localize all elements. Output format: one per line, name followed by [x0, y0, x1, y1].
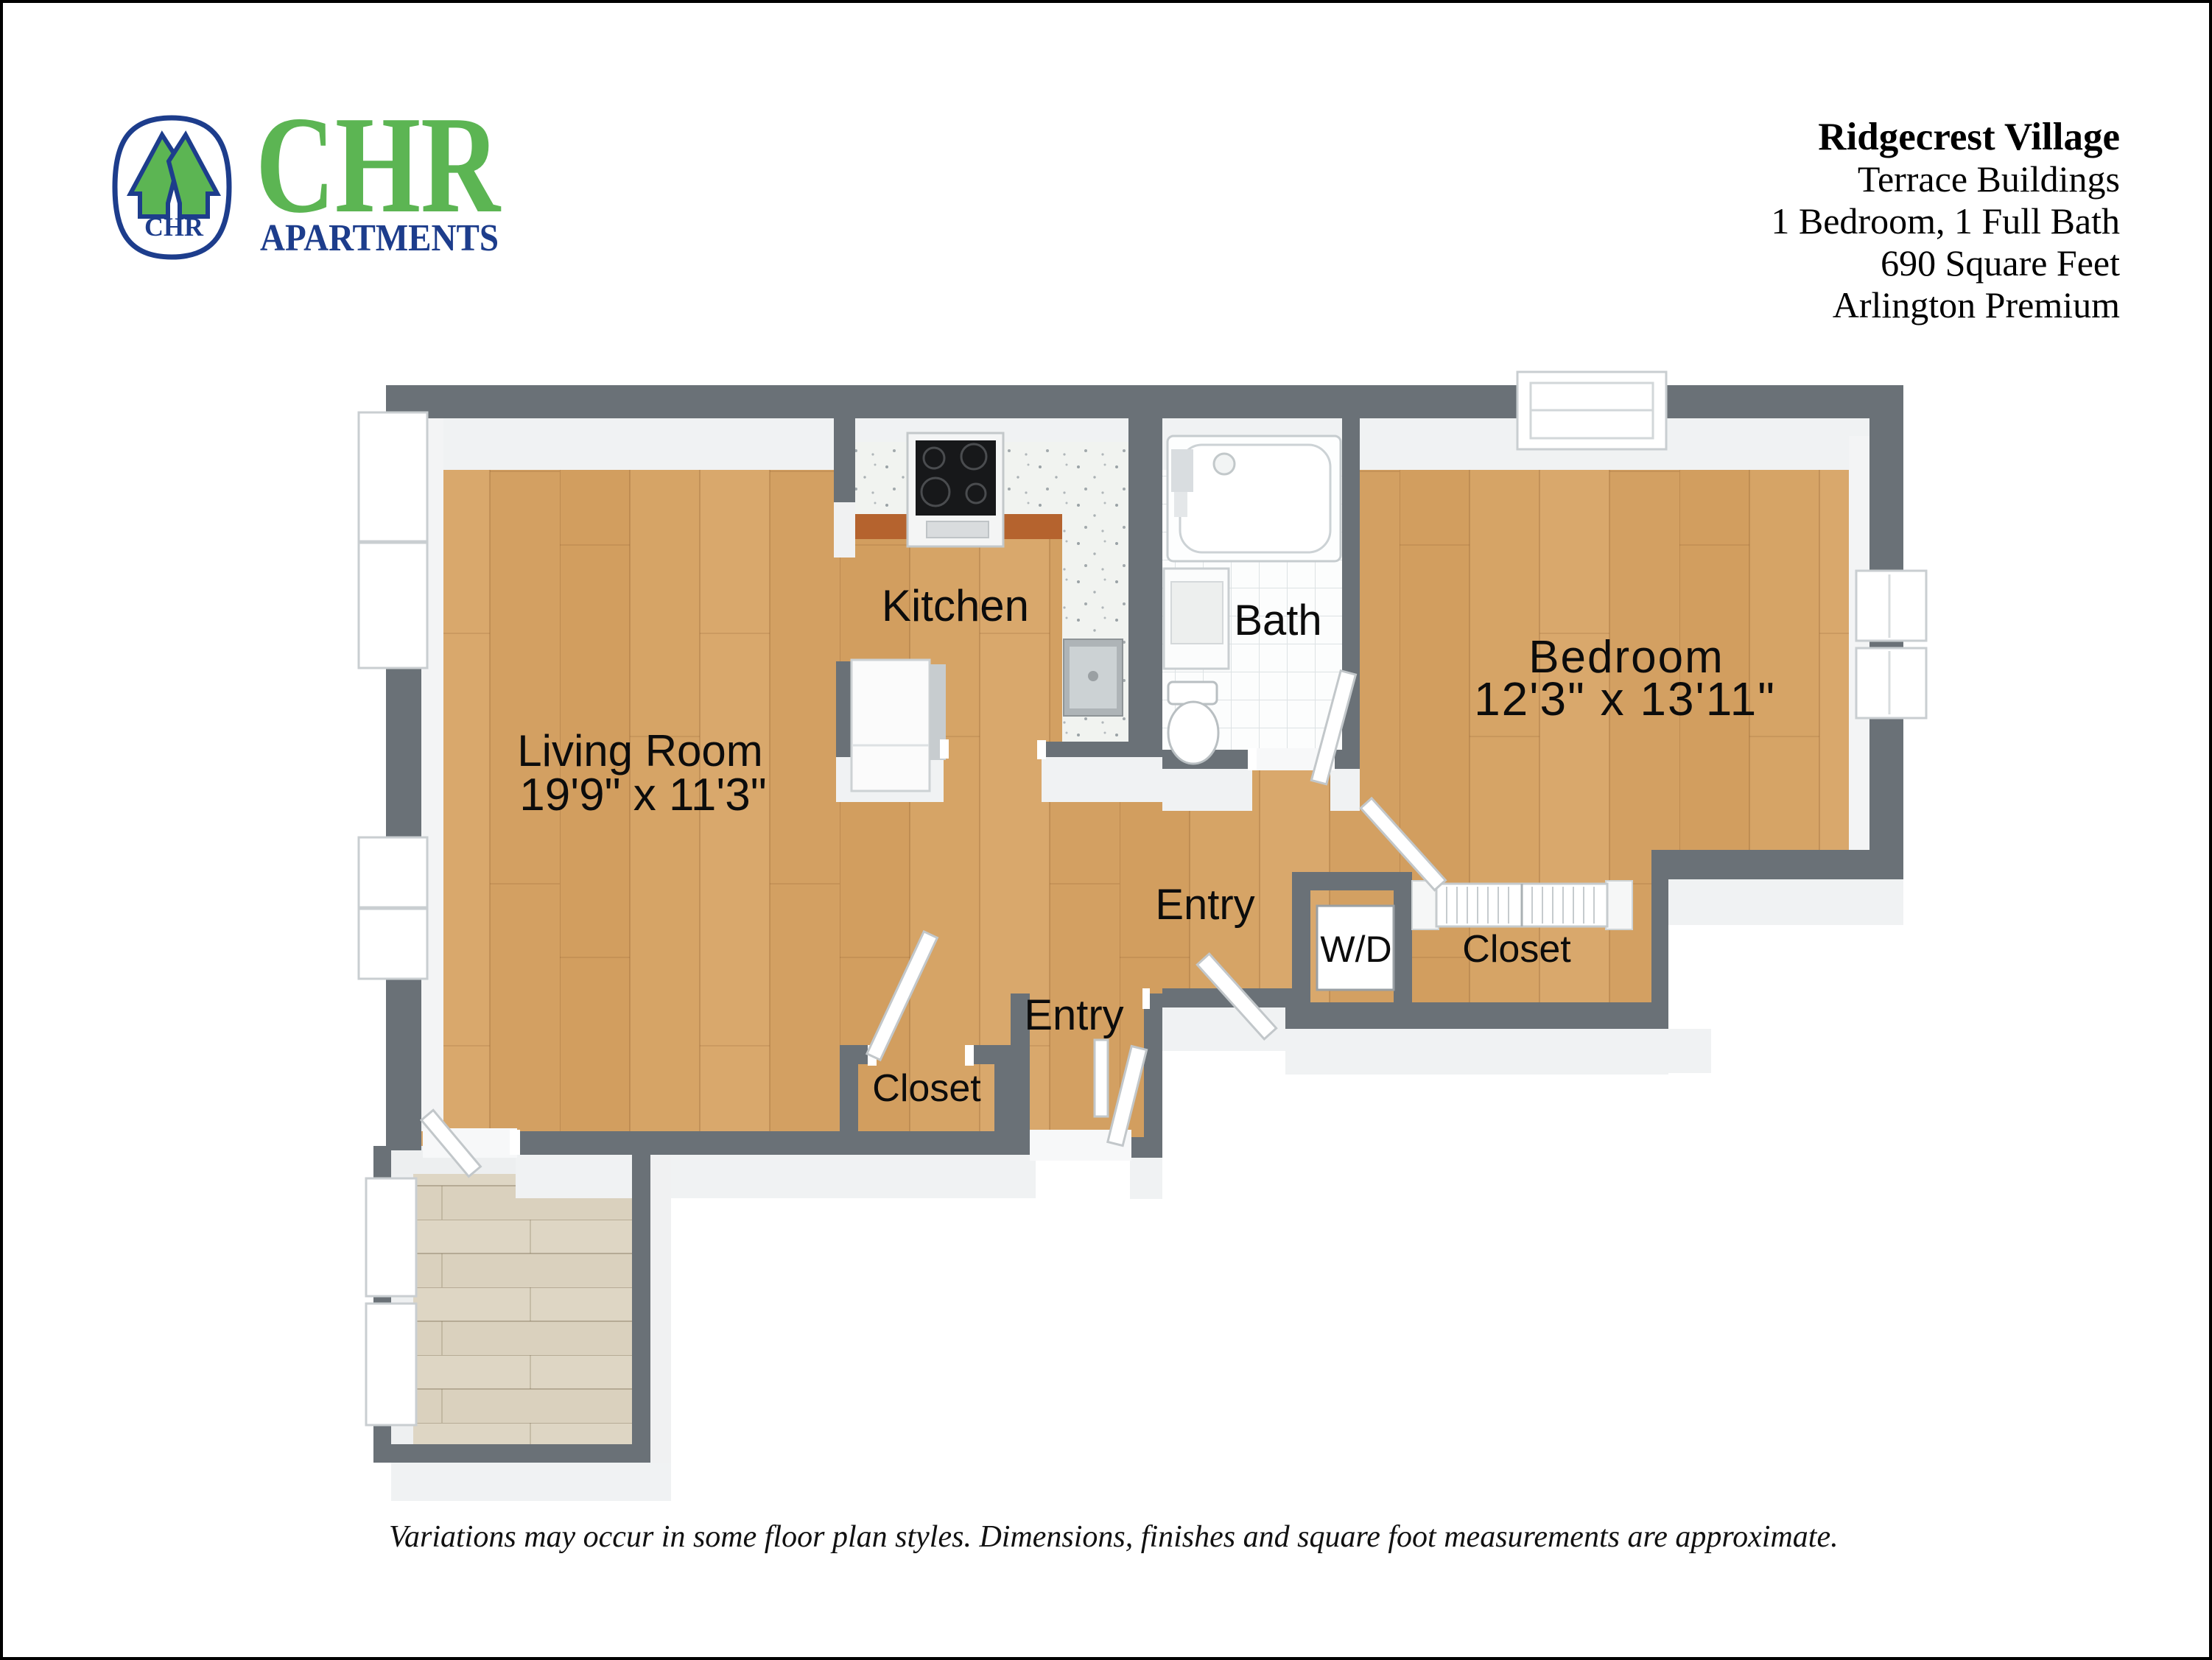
svg-text:1 Bedroom, 1 Full Bath: 1 Bedroom, 1 Full Bath	[1771, 200, 2120, 242]
svg-text:Arlington Premium: Arlington Premium	[1833, 284, 2120, 326]
svg-text:Entry: Entry	[1155, 881, 1254, 929]
svg-text:Living Room: Living Room	[517, 726, 763, 776]
svg-text:Bath: Bath	[1234, 597, 1321, 644]
svg-text:Closet: Closet	[872, 1067, 981, 1110]
svg-text:12'3" x 13'11": 12'3" x 13'11"	[1474, 672, 1776, 725]
svg-text:690 Square Feet: 690 Square Feet	[1881, 242, 2120, 284]
svg-text:CHR: CHR	[144, 212, 204, 242]
svg-text:Terrace Buildings: Terrace Buildings	[1858, 158, 2120, 200]
svg-text:Kitchen: Kitchen	[882, 581, 1029, 630]
svg-text:Closet: Closet	[1462, 928, 1571, 971]
svg-text:19'9" x 11'3": 19'9" x 11'3"	[519, 770, 766, 820]
svg-text:APARTMENTS: APARTMENTS	[260, 217, 499, 259]
svg-text:Ridgecrest Village: Ridgecrest Village	[1818, 116, 2120, 158]
svg-text:W/D: W/D	[1320, 929, 1391, 970]
svg-text:Variations may occur in some f: Variations may occur in some floor plan …	[389, 1520, 1839, 1554]
svg-text:Entry: Entry	[1024, 991, 1123, 1039]
